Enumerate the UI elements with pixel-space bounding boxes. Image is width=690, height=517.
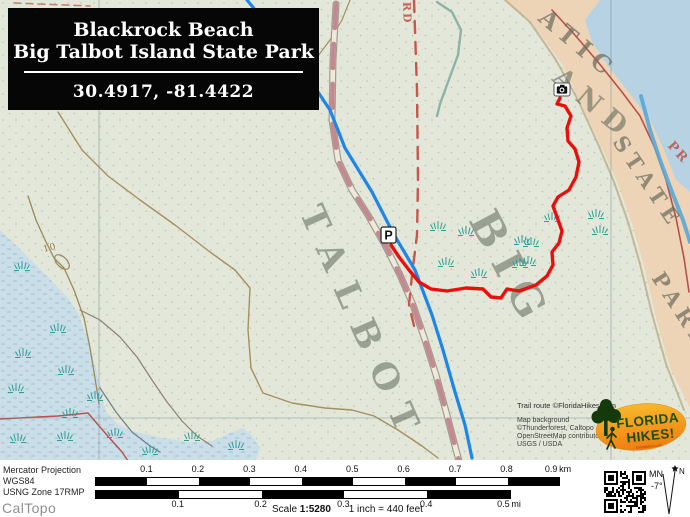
scale-bar-segment xyxy=(96,491,179,498)
usng-label: USNG Zone 17RMP xyxy=(3,487,85,497)
caltopo-map-export: ATICANDSTATEPARKBIGTALBOTPRRD10PTrail ro… xyxy=(0,0,690,517)
scale-bar-segment xyxy=(427,491,510,498)
north-star-icon xyxy=(672,465,679,472)
projection-label: Mercator Projection xyxy=(3,465,81,475)
parking-marker[interactable]: P xyxy=(381,227,396,243)
map-subtitle: Big Talbot Island State Park xyxy=(8,41,319,64)
scale-tick-label: 0.5 mi xyxy=(497,499,521,509)
logo-tree-icon xyxy=(600,399,612,411)
scale-tick-label: 0.2 xyxy=(254,499,267,509)
title-divider xyxy=(24,71,303,73)
mi-scale-bar xyxy=(95,490,511,499)
scale-tick-label: 0.2 xyxy=(192,464,205,474)
scale-bar-segment xyxy=(353,478,404,485)
footer-bar: Mercator Projection WGS84 USNG Zone 17RM… xyxy=(0,460,690,517)
scale-prefix: Scale xyxy=(272,504,297,515)
scale-text: Scale 1:5280 1 inch = 440 feet xyxy=(272,504,423,515)
scale-bar-segment xyxy=(147,478,198,485)
logo-tree-icon xyxy=(592,411,605,424)
qr-code xyxy=(602,469,648,515)
background-credit-line: USGS / USDA xyxy=(517,441,562,448)
scale-tick-label: 0.7 xyxy=(449,464,462,474)
photo-waypoint-marker[interactable] xyxy=(554,83,570,96)
background-credit-line: ©Thunderforest, Caltopo xyxy=(517,424,594,432)
magnetic-north-label: MN xyxy=(649,469,663,479)
coordinates: 30.4917, -81.4422 xyxy=(8,82,319,102)
scale-equivalent: 1 inch = 440 feet xyxy=(349,504,423,515)
scale-bar-segment xyxy=(250,478,301,485)
title-card: Blackrock Beach Big Talbot Island State … xyxy=(8,8,319,110)
scale-bar-segment xyxy=(456,478,507,485)
declination-diagram: N MN -7° xyxy=(646,462,690,517)
km-scale-bar xyxy=(95,477,560,486)
scale-bar-segment xyxy=(199,478,250,485)
scale-bar-segment xyxy=(262,491,345,498)
map-title: Blackrock Beach xyxy=(8,19,319,41)
datum-label: WGS84 xyxy=(3,476,35,486)
caltopo-brand: CalTopo xyxy=(2,500,56,516)
scale-tick-label: 0.1 xyxy=(140,464,153,474)
scale-bar-segment xyxy=(508,478,559,485)
svg-text:P: P xyxy=(384,229,392,243)
scale-ratio: 1:5280 xyxy=(300,504,331,515)
scale-tick-label: 0.9 km xyxy=(545,464,571,474)
scale-tick-label: 0.5 xyxy=(346,464,359,474)
scale-tick-label: 0.3 xyxy=(243,464,256,474)
scale-tick-label: 0.4 xyxy=(295,464,308,474)
background-credit-line: Map background xyxy=(517,417,569,424)
scale-bar-segment xyxy=(96,478,147,485)
declination-value: -7° xyxy=(651,481,663,491)
scale-tick-label: 0.1 xyxy=(172,499,185,509)
scale-bar-segment xyxy=(405,478,456,485)
map-label-rd: RD xyxy=(400,2,414,25)
scale-tick-label: 0.6 xyxy=(397,464,410,474)
scale-tick-label: 0.8 xyxy=(500,464,513,474)
scale-bar-segment xyxy=(344,491,427,498)
scale-bar-segment xyxy=(302,478,353,485)
background-credit-line: OpenStreetMap contributors, xyxy=(517,433,607,440)
scale-bar-segment xyxy=(179,491,262,498)
true-north-label: N xyxy=(679,467,685,476)
